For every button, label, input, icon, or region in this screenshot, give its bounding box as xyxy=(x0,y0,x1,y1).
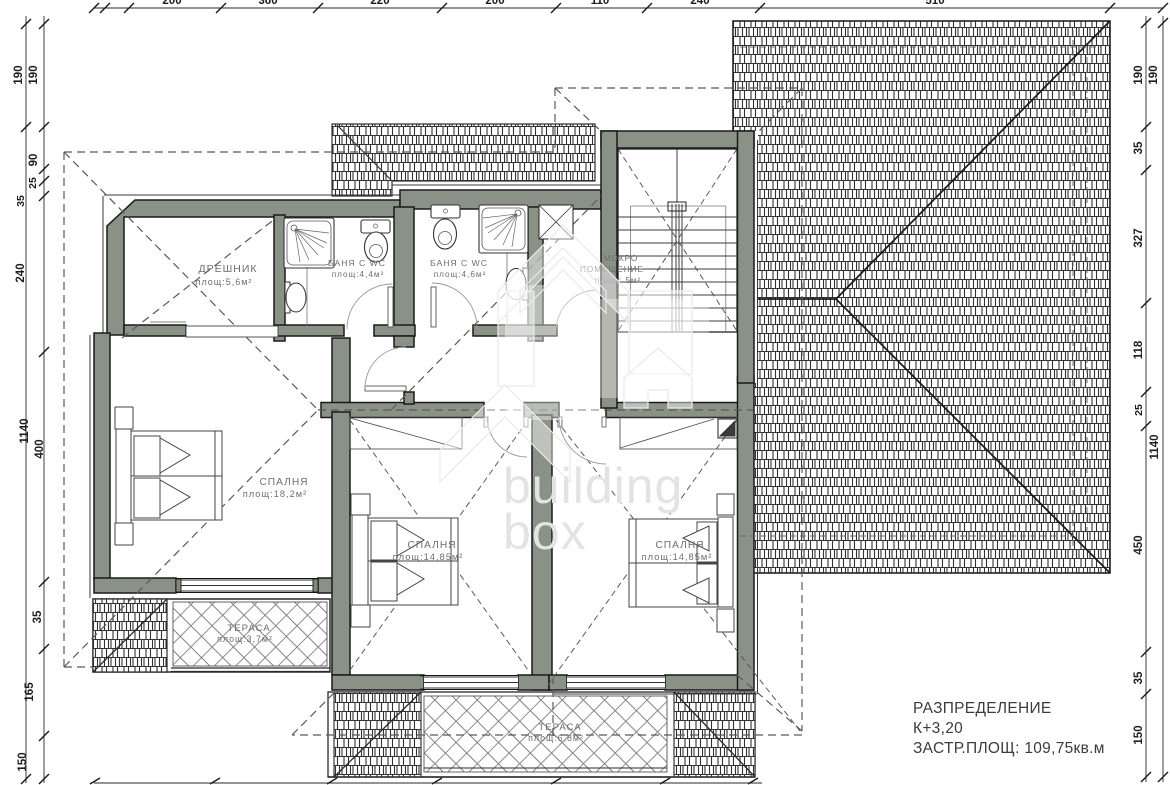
svg-text:площ:14,85м²: площ:14,85м² xyxy=(393,552,464,562)
svg-text:200: 200 xyxy=(162,0,181,7)
svg-text:118: 118 xyxy=(1133,340,1145,359)
svg-text:ЗАСТР.ПЛОЩ: 109,75кв.м: ЗАСТР.ПЛОЩ: 109,75кв.м xyxy=(913,740,1105,757)
svg-text:150: 150 xyxy=(1133,725,1145,744)
svg-text:450: 450 xyxy=(1133,535,1145,554)
svg-text:площ:4,4м²: площ:4,4м² xyxy=(332,270,385,279)
svg-text:1140: 1140 xyxy=(19,419,31,444)
svg-text:1140: 1140 xyxy=(1149,435,1161,460)
svg-text:РАЗПРЕДЕЛЕНИЕ: РАЗПРЕДЕЛЕНИЕ xyxy=(913,700,1052,717)
svg-text:К+3,20: К+3,20 xyxy=(913,720,963,737)
svg-text:площ:18,2м²: площ:18,2м² xyxy=(243,489,308,499)
svg-text:БАНЯ С WC: БАНЯ С WC xyxy=(430,258,488,268)
svg-text:240: 240 xyxy=(690,0,709,7)
svg-text:35: 35 xyxy=(32,610,44,623)
svg-text:СПАЛНЯ: СПАЛНЯ xyxy=(655,540,704,551)
svg-text:110: 110 xyxy=(591,0,610,7)
svg-text:СПАЛНЯ: СПАЛНЯ xyxy=(407,540,456,551)
svg-text:190: 190 xyxy=(1133,65,1145,84)
svg-text:ДРЕШНИК: ДРЕШНИК xyxy=(199,263,258,275)
svg-text:90: 90 xyxy=(28,154,40,167)
svg-text:25: 25 xyxy=(27,177,39,189)
svg-text:190: 190 xyxy=(13,65,25,84)
svg-text:35: 35 xyxy=(1133,671,1145,684)
svg-text:510: 510 xyxy=(925,0,944,7)
svg-text:190: 190 xyxy=(28,65,40,84)
svg-text:площ:14,85м²: площ:14,85м² xyxy=(642,552,713,562)
svg-text:360: 360 xyxy=(258,0,277,7)
svg-text:190: 190 xyxy=(1148,65,1160,84)
svg-text:box: box xyxy=(503,504,587,560)
svg-text:240: 240 xyxy=(15,263,27,282)
svg-text:площ:3,7м²: площ:3,7м² xyxy=(217,634,273,644)
svg-text:35: 35 xyxy=(15,195,27,207)
svg-text:35: 35 xyxy=(1133,141,1145,154)
svg-text:327: 327 xyxy=(1133,228,1145,247)
svg-text:БАНЯ С WC: БАНЯ С WC xyxy=(328,258,386,268)
svg-text:ТЕРАСА: ТЕРАСА xyxy=(538,722,581,733)
svg-text:25: 25 xyxy=(1133,404,1145,416)
svg-text:СПАЛНЯ: СПАЛНЯ xyxy=(259,477,308,488)
svg-text:165: 165 xyxy=(24,682,36,702)
svg-text:150: 150 xyxy=(17,752,29,771)
svg-text:площ:4,6м²: площ:4,6м² xyxy=(434,270,487,279)
svg-text:МОКРО: МОКРО xyxy=(604,254,639,263)
svg-text:площ:5,6м²: площ:5,6м² xyxy=(196,277,253,287)
svg-text:400: 400 xyxy=(34,439,46,458)
svg-text:220: 220 xyxy=(370,0,389,7)
svg-text:200: 200 xyxy=(485,0,504,7)
svg-text:ТЕРАСА: ТЕРАСА xyxy=(227,623,270,634)
svg-text:площ:6,8м²: площ:6,8м² xyxy=(528,733,584,743)
